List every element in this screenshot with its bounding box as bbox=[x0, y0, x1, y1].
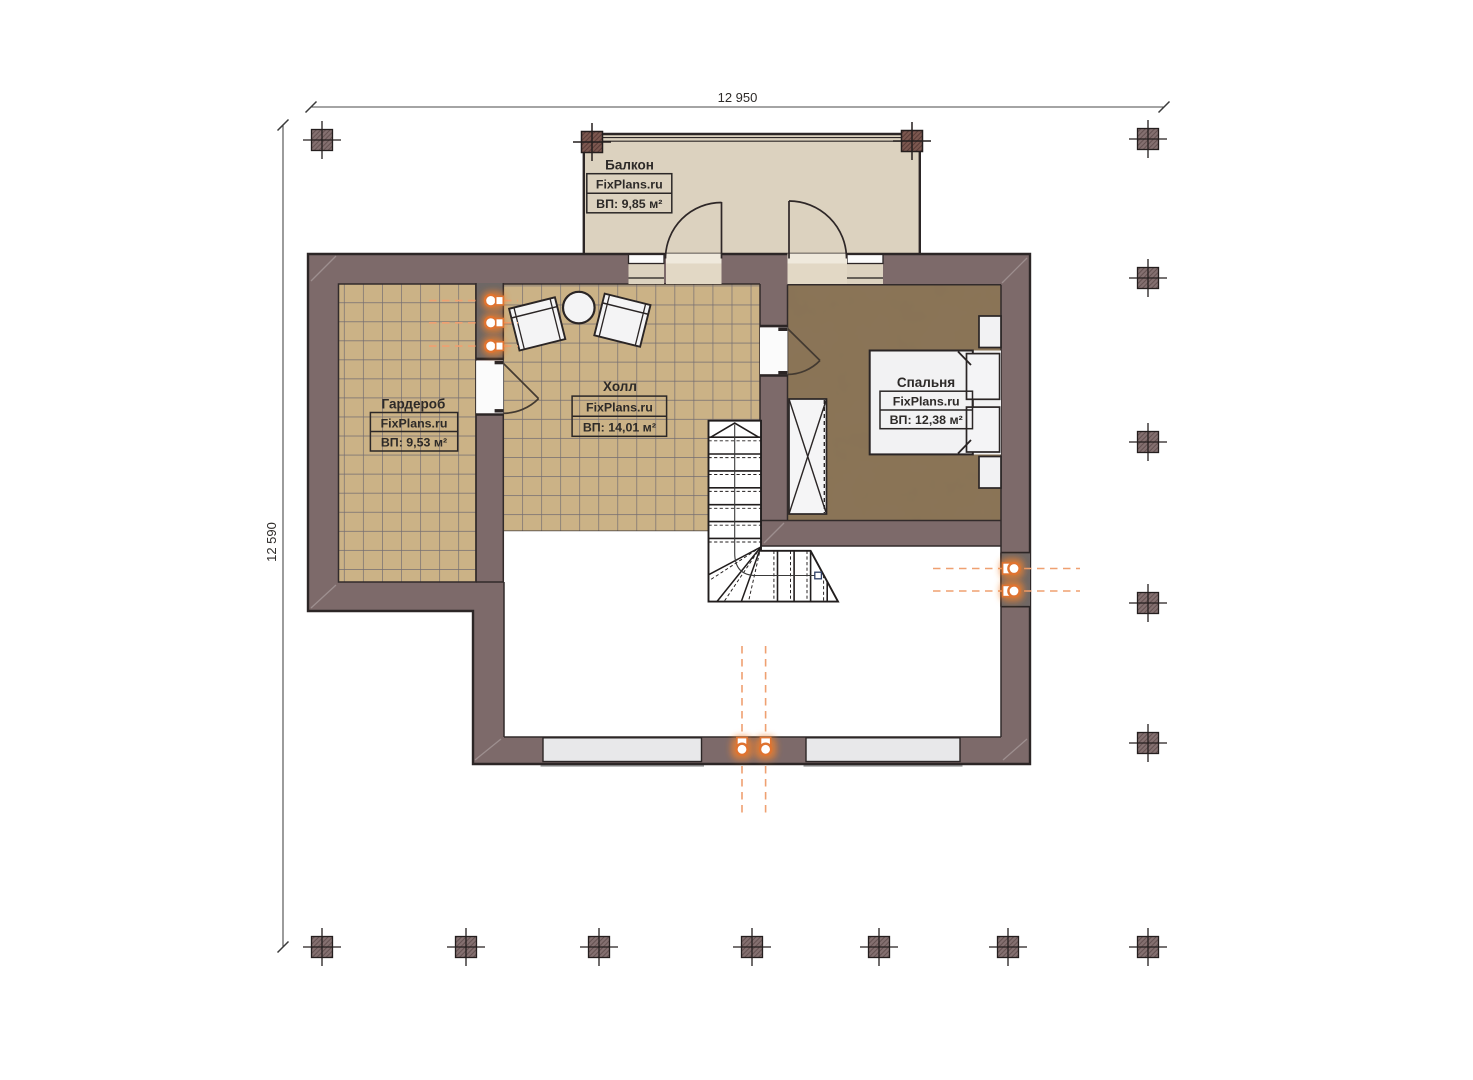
svg-text:FixPlans.ru: FixPlans.ru bbox=[381, 417, 448, 431]
svg-text:12 590: 12 590 bbox=[264, 522, 279, 562]
svg-text:Холл: Холл bbox=[603, 379, 637, 394]
svg-text:12 950: 12 950 bbox=[718, 90, 758, 105]
svg-text:Спальня: Спальня bbox=[897, 375, 955, 390]
svg-text:FixPlans.ru: FixPlans.ru bbox=[596, 178, 663, 192]
svg-text:Гардероб: Гардероб bbox=[381, 397, 445, 412]
svg-text:ВП: 12,38 м²: ВП: 12,38 м² bbox=[890, 413, 963, 427]
svg-text:ВП: 9,85 м²: ВП: 9,85 м² bbox=[596, 197, 662, 211]
svg-text:Балкон: Балкон bbox=[605, 158, 654, 173]
svg-text:ВП: 14,01 м²: ВП: 14,01 м² bbox=[583, 421, 656, 435]
svg-text:ВП: 9,53 м²: ВП: 9,53 м² bbox=[381, 436, 447, 450]
svg-text:FixPlans.ru: FixPlans.ru bbox=[893, 395, 960, 409]
svg-text:FixPlans.ru: FixPlans.ru bbox=[586, 401, 653, 415]
